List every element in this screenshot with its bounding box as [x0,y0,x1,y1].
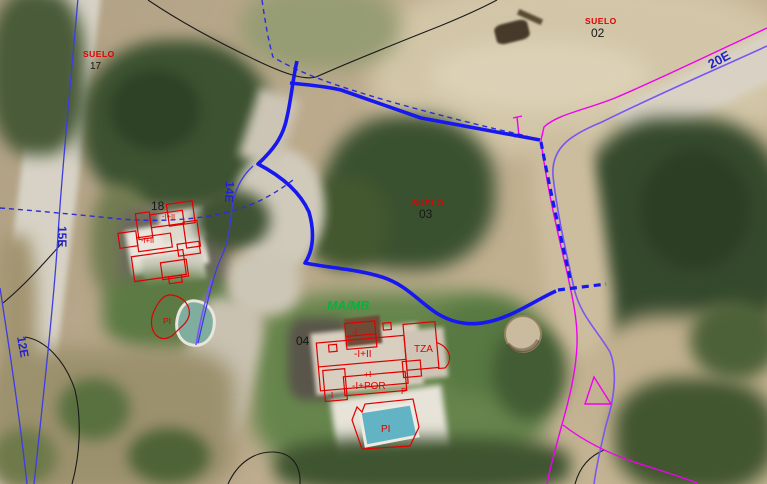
gazebo-shape [505,316,541,352]
pool1-shape [177,301,215,346]
house2-number: 04 [296,334,310,348]
house2-floor-right: -I [403,366,408,376]
pool2-label: PI [381,424,390,435]
house1-outline [115,201,205,290]
parcel-number-center: 03 [419,207,433,221]
house2-terrace-label: TZA [414,344,433,355]
wall-material-label: MA/MB [327,299,369,313]
map-viewport[interactable]: SUELO 17 SUELO 02 SUELO 03 20E 15E 12E 1… [0,0,767,484]
road-label-12e: 12E [14,335,31,358]
map-labels: SUELO 17 SUELO 02 SUELO 03 20E 15E 12E 1… [14,16,733,435]
house2-porch-label: -I+POR [352,381,386,392]
violet-boundary-lines [196,46,767,484]
house2-p-label: P [401,386,407,396]
pool1-label: PI [163,316,171,326]
parcel-number-topright: 02 [591,26,605,40]
cadastral-overlay: SUELO 17 SUELO 02 SUELO 03 20E 15E 12E 1… [0,0,767,484]
suelo-label-topright: SUELO [585,16,617,26]
house2-floor-top: -I [352,327,357,337]
blue-parcel-lines [0,0,538,484]
house1-floor-lower: -I+II [141,236,154,245]
house2-floor-left: -I [328,390,333,400]
road-label-20e: 20E [705,47,733,71]
suelo-label-topleft: SUELO [83,49,115,59]
selected-parcel-boundary [258,61,606,324]
road-label-15e: 15E [55,226,69,247]
house1-floor-upper: -I+II [162,212,175,221]
road-label-14e: 14E [222,181,237,203]
house2-floor-main: -I+II [354,349,372,360]
house2-floor-mid: +I [364,369,371,379]
parcel-number-topleft: 17 [90,61,102,72]
magenta-boundary-lines [513,28,767,484]
house1-number: 18 [151,199,165,213]
